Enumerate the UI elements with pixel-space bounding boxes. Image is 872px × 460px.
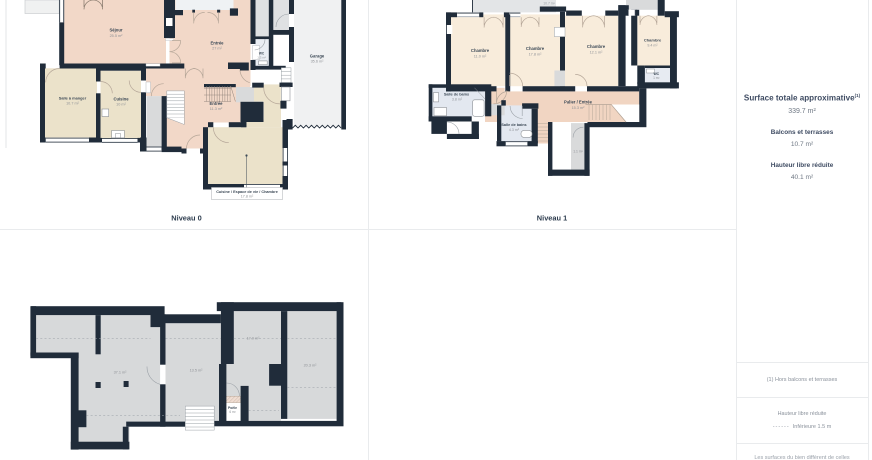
svg-text:27 m²: 27 m² <box>212 47 222 51</box>
svg-text:17.9 m²: 17.9 m² <box>247 337 261 341</box>
svg-text:11.0 m²: 11.0 m² <box>474 55 487 59</box>
svg-text:Cuisine: Cuisine <box>113 97 129 102</box>
svg-text:10.7 m²: 10.7 m² <box>543 2 555 6</box>
svg-text:Entrée: Entrée <box>210 41 224 46</box>
svg-text:10 m²: 10 m² <box>116 103 126 107</box>
svg-text:Cuisine / Espace de vie / Cham: Cuisine / Espace de vie / Chambre <box>216 190 278 194</box>
svg-text:4.3 m²: 4.3 m² <box>509 128 520 132</box>
svg-text:1.1 m²: 1.1 m² <box>573 150 583 154</box>
svg-text:20.3 m²: 20.3 m² <box>304 364 318 368</box>
svg-text:Niveau 0: Niveau 0 <box>171 214 201 223</box>
svg-text:17.8 m²: 17.8 m² <box>241 195 254 199</box>
svg-text:9.4 m²: 9.4 m² <box>647 44 658 48</box>
svg-text:37.1 m²: 37.1 m² <box>114 371 128 375</box>
svg-text:Garage: Garage <box>310 54 325 59</box>
svg-text:Chambre: Chambre <box>587 44 606 49</box>
svg-text:Salle de bains: Salle de bains <box>444 93 469 97</box>
svg-text:3.8 m²: 3.8 m² <box>452 98 463 102</box>
svg-text:12.1 m²: 12.1 m² <box>590 51 604 55</box>
svg-text:Salle de bains: Salle de bains <box>501 123 526 127</box>
svg-text:Niveau 1: Niveau 1 <box>537 214 567 223</box>
svg-text:6 m²: 6 m² <box>229 410 235 414</box>
svg-text:17.8 m²: 17.8 m² <box>529 53 543 57</box>
svg-text:11.3 m²: 11.3 m² <box>210 107 223 111</box>
svg-text:Chambre: Chambre <box>526 46 545 51</box>
svg-text:15.3 m²: 15.3 m² <box>572 106 586 110</box>
svg-text:35.6 m²: 35.6 m² <box>311 60 325 64</box>
svg-text:1 m²: 1 m² <box>653 76 659 80</box>
svg-text:13.5 m²: 13.5 m² <box>190 369 204 373</box>
svg-text:10.7 m²: 10.7 m² <box>66 102 80 106</box>
svg-text:Palier / Entrée: Palier / Entrée <box>564 100 593 105</box>
svg-text:Salle à manger: Salle à manger <box>59 96 87 101</box>
svg-text:1.3 m²: 1.3 m² <box>257 56 266 60</box>
svg-text:Chambre: Chambre <box>471 48 490 53</box>
svg-text:Séjour: Séjour <box>109 28 122 33</box>
svg-text:Entrée: Entrée <box>209 101 223 106</box>
svg-text:25.5 m²: 25.5 m² <box>110 34 124 38</box>
svg-text:Chambre: Chambre <box>644 38 662 43</box>
